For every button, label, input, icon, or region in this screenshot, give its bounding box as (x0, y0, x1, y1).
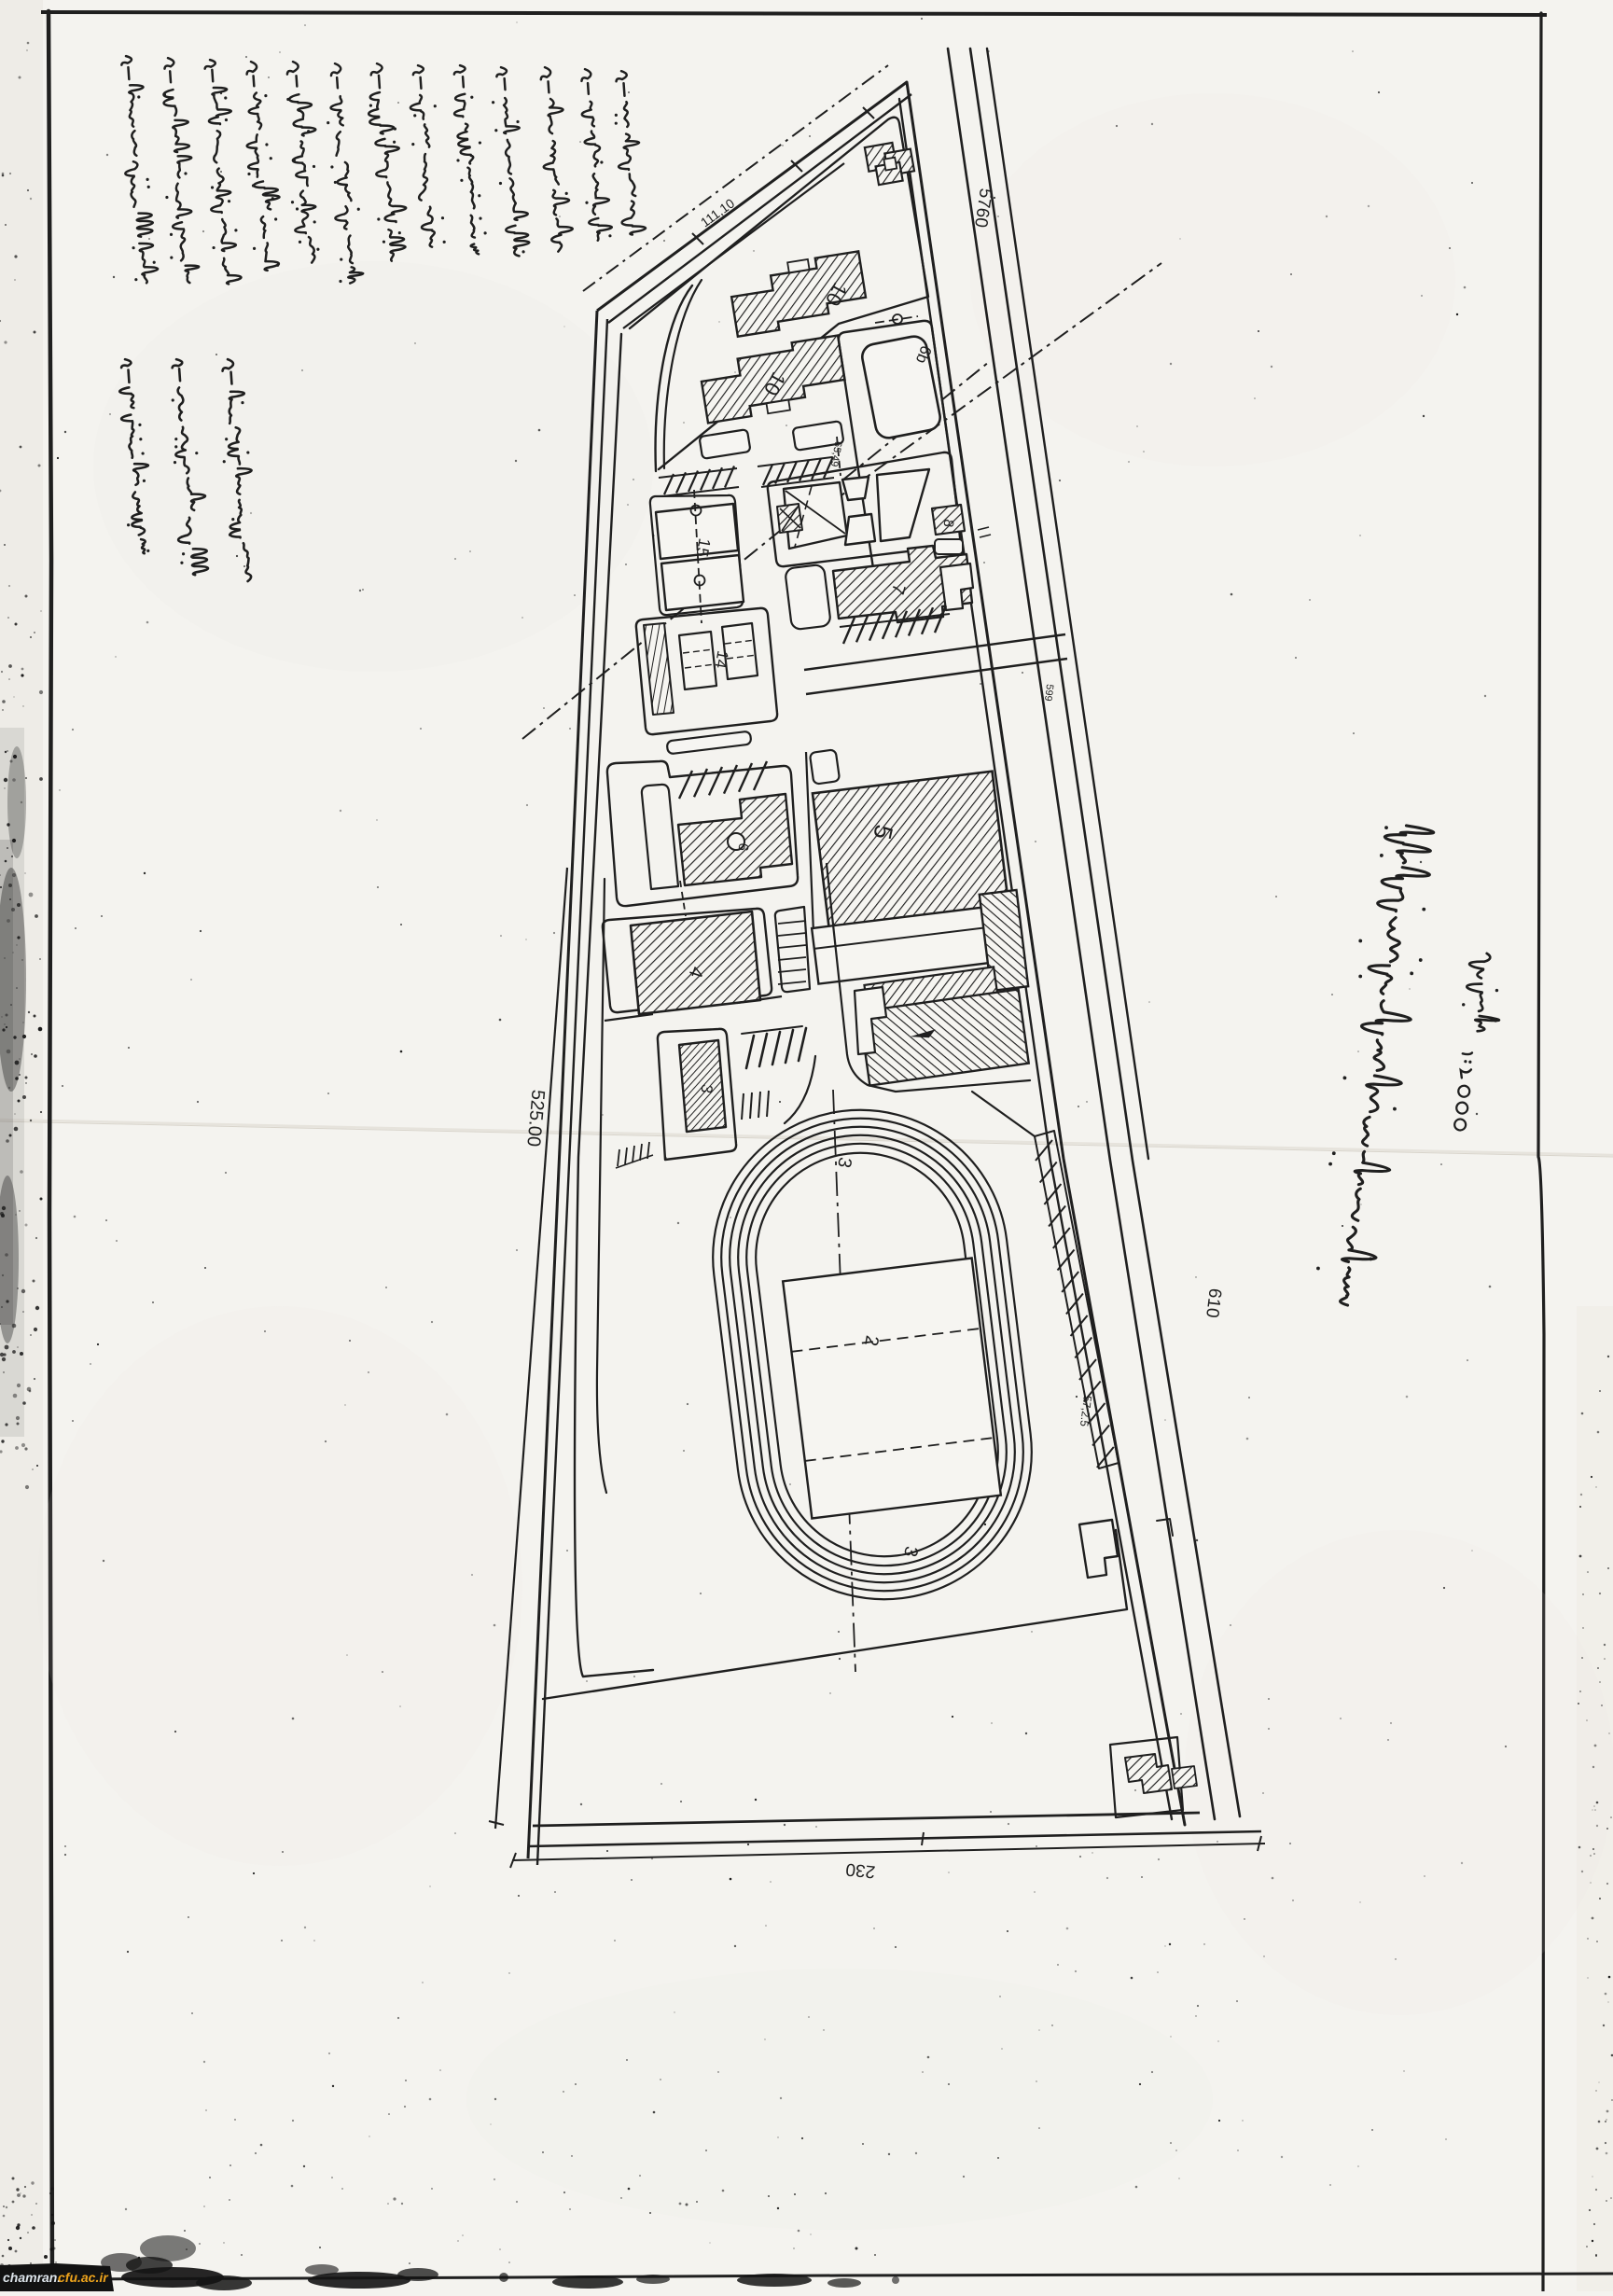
svg-text:15: 15 (692, 536, 714, 558)
svg-text:610: 610 (1202, 1287, 1225, 1319)
svg-text:chamran.: chamran. (3, 2270, 61, 2285)
svg-text:230: 230 (845, 1858, 877, 1881)
svg-text:cfu.ac.ir: cfu.ac.ir (58, 2270, 109, 2285)
svg-text:14: 14 (711, 649, 731, 670)
svg-text:599: 599 (1042, 684, 1055, 703)
